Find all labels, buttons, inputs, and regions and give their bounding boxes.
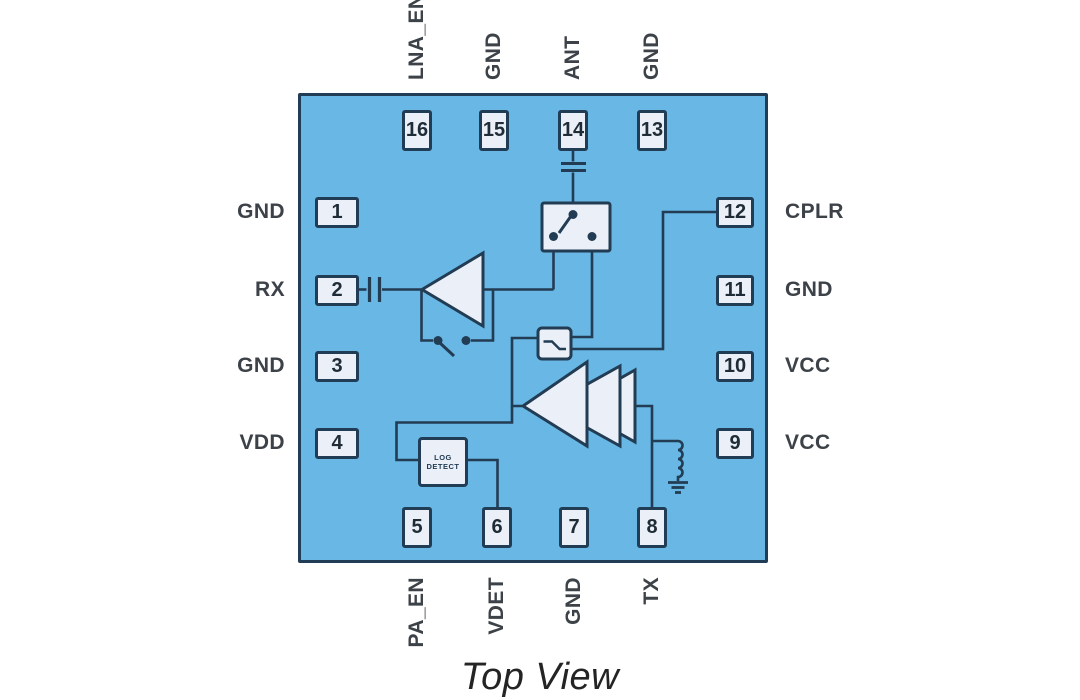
pin-11-label: GND [785, 277, 915, 303]
pin-16-label: LNA_EN [406, 0, 428, 80]
pin-5-box: 5 [402, 507, 432, 548]
pin-16-box: 16 [402, 110, 432, 151]
wire-pa-to-coupler [512, 338, 538, 406]
pin-13-number: 13 [641, 119, 663, 142]
inductor-icon [678, 441, 683, 481]
pin-3-label: GND [155, 353, 285, 379]
lna-amplifier-icon [422, 253, 483, 326]
pin-13-label: GND [641, 32, 663, 80]
pin-3-box: 3 [315, 351, 359, 382]
pin-10-box: 10 [716, 351, 754, 382]
pin-6-label: VDET [486, 577, 508, 635]
wire-detector-out [468, 460, 498, 507]
wire-switch-tx-throw [571, 251, 592, 337]
pin-15-box: 15 [479, 110, 509, 151]
spdt-antenna-switch-icon [542, 203, 610, 251]
pin-15-label: GND [483, 32, 505, 80]
pin-3-number: 3 [331, 355, 342, 378]
pin-7-box: 7 [559, 507, 589, 548]
wire-pa-input-tx [635, 406, 652, 507]
pinout-diagram: LOG DETECT 16 15 14 13 5 6 7 8 1 2 3 4 1… [0, 0, 1080, 700]
pin-2-number: 2 [331, 279, 342, 302]
pin-12-number: 12 [724, 201, 746, 224]
pin-4-number: 4 [331, 432, 342, 455]
pa-amplifier-icon [523, 362, 635, 446]
rx-dc-block-capacitor-icon [370, 277, 380, 302]
pin-12-label: CPLR [785, 199, 915, 225]
pin-5-number: 5 [411, 516, 422, 539]
pin-6-box: 6 [482, 507, 512, 548]
pin-9-label: VCC [785, 430, 915, 456]
pin-5-label: PA_EN [406, 577, 428, 647]
pin-2-label: RX [155, 277, 285, 303]
ground-icon [668, 483, 688, 493]
pin-10-number: 10 [724, 355, 746, 378]
pin-14-box: 14 [558, 110, 588, 151]
pin-1-box: 1 [315, 197, 359, 228]
pin-11-number: 11 [724, 279, 745, 302]
pin-16-number: 16 [406, 119, 428, 142]
pin-8-box: 8 [637, 507, 667, 548]
pin-14-label: ANT [562, 36, 584, 80]
pin-1-number: 1 [331, 201, 342, 224]
pin-6-number: 6 [491, 516, 502, 539]
pin-11-box: 11 [716, 275, 754, 306]
pin-4-box: 4 [315, 428, 359, 459]
pin-8-number: 8 [646, 516, 657, 539]
pin-7-label: GND [563, 577, 585, 625]
schematic-layer [0, 0, 1080, 700]
pin-8-label: TX [641, 577, 663, 605]
log-detector-block: LOG DETECT [418, 437, 468, 487]
pin-4-label: VDD [155, 430, 285, 456]
log-detect-line1: LOG [434, 453, 452, 462]
directional-coupler-icon [538, 328, 571, 359]
figure-title: Top View [390, 656, 690, 699]
pin-9-box: 9 [716, 428, 754, 459]
pin-12-box: 12 [716, 197, 754, 228]
log-detect-line2: DETECT [427, 462, 460, 471]
ant-series-capacitor-icon [561, 164, 586, 171]
pin-14-number: 14 [562, 119, 584, 142]
pin-13-box: 13 [637, 110, 667, 151]
pin-9-number: 9 [729, 432, 740, 455]
pin-15-number: 15 [483, 119, 505, 142]
pin-10-label: VCC [785, 353, 915, 379]
pin-1-label: GND [155, 199, 285, 225]
pin-7-number: 7 [568, 516, 579, 539]
pin-2-box: 2 [315, 275, 359, 306]
